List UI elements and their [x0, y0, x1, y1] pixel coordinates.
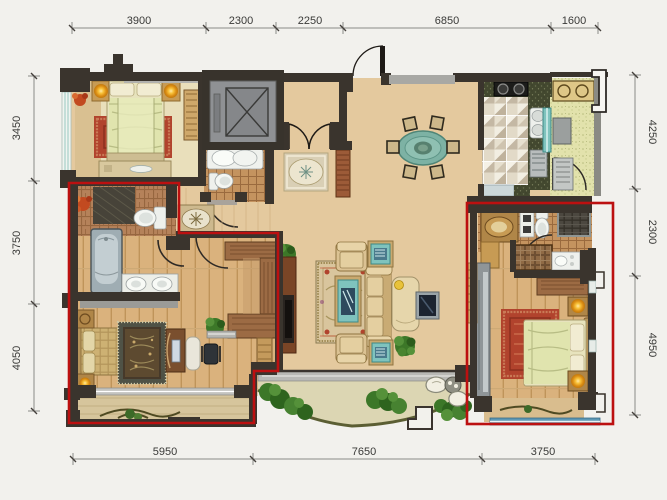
svg-text:5950: 5950 — [153, 446, 177, 458]
svg-text:4950: 4950 — [646, 333, 658, 357]
svg-text:4250: 4250 — [646, 120, 658, 144]
svg-text:3750: 3750 — [531, 446, 555, 458]
svg-text:2300: 2300 — [229, 15, 253, 27]
svg-text:3750: 3750 — [11, 231, 23, 255]
svg-text:3450: 3450 — [11, 116, 23, 140]
svg-text:4050: 4050 — [11, 346, 23, 370]
svg-text:2300: 2300 — [646, 220, 658, 244]
svg-text:1600: 1600 — [562, 15, 586, 27]
svg-text:6850: 6850 — [435, 15, 459, 27]
svg-text:2250: 2250 — [298, 15, 322, 27]
svg-text:7650: 7650 — [352, 446, 376, 458]
svg-text:3900: 3900 — [127, 15, 151, 27]
